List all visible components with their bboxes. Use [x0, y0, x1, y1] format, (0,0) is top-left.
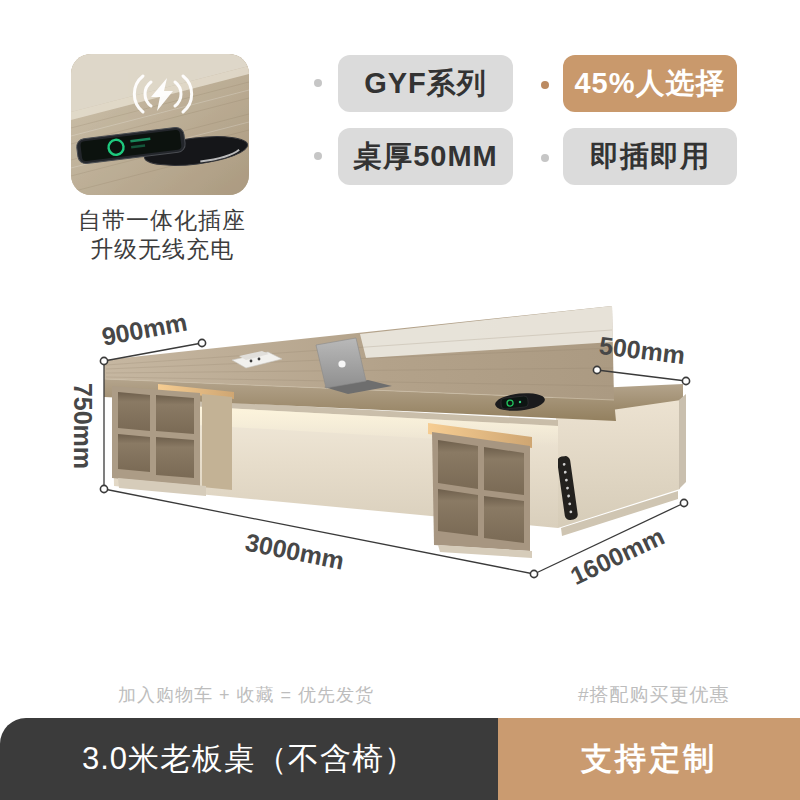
- center-shelf-cabinet: [428, 423, 532, 558]
- note-bundle-discount: #搭配购买更优惠: [578, 682, 730, 708]
- dim-label-return-length: 1600mm: [566, 522, 668, 590]
- desk-dimension-diagram: 900mm 750mm 3000mm 500mm 1600mm: [0, 0, 800, 800]
- left-shelf-cabinet: [112, 384, 234, 496]
- dim-label-desk-height: 750mm: [69, 383, 97, 469]
- product-title: 3.0米老板桌（不含椅）: [0, 718, 498, 800]
- customize-button[interactable]: 支持定制: [498, 718, 800, 800]
- dim-label-desk-depth: 900mm: [99, 308, 189, 351]
- note-priority-shipping: 加入购物车 + 收藏 = 优先发货: [118, 683, 374, 707]
- product-card: 自带一体化插座 升级无线充电 GYF系列 45%人选择 桌厚50MM 即插即用: [0, 0, 800, 800]
- dim-label-desk-length: 3000mm: [243, 528, 347, 575]
- bottom-bar: 3.0米老板桌（不含椅） 支持定制: [0, 718, 800, 800]
